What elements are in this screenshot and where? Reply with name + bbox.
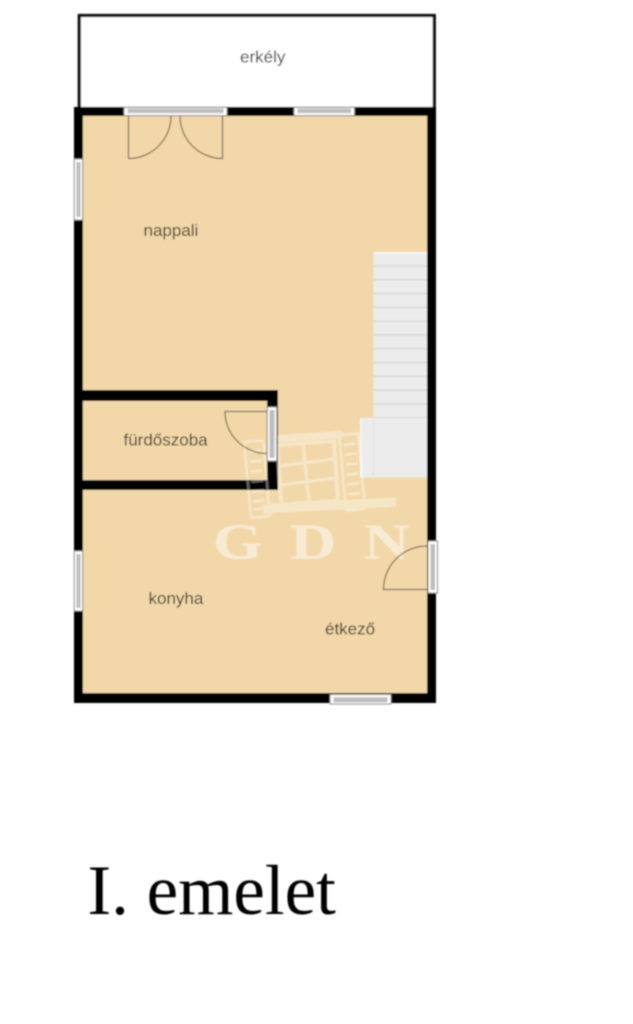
svg-text:fürdőszoba: fürdőszoba	[124, 431, 209, 450]
svg-text:erkély: erkély	[240, 48, 286, 67]
svg-text:I. emelet: I. emelet	[88, 852, 337, 930]
svg-text:nappali: nappali	[144, 221, 199, 240]
svg-text:GDN: GDN	[213, 515, 437, 571]
svg-text:konyha: konyha	[149, 589, 204, 608]
svg-text:étkező: étkező	[325, 620, 375, 639]
